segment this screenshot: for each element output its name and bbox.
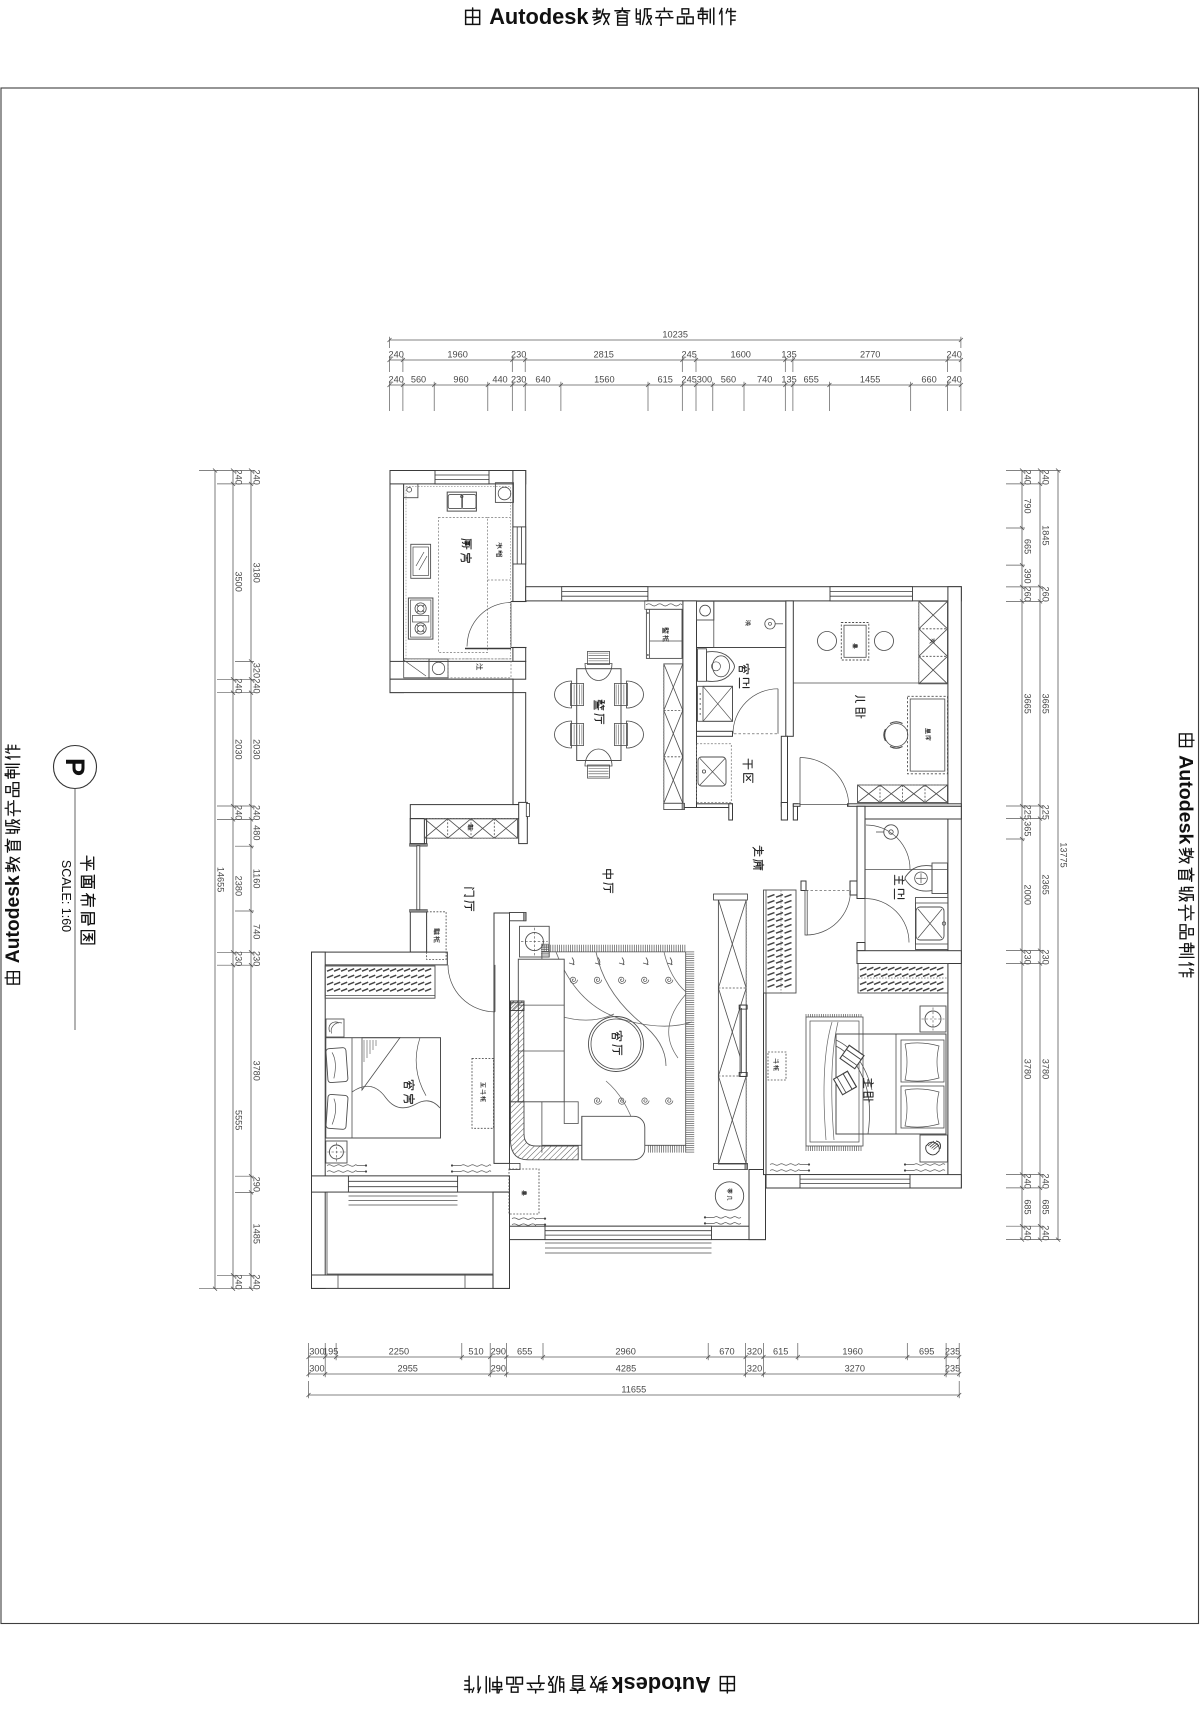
svg-text:685: 685 [1041,1199,1051,1214]
svg-text:1560: 1560 [594,375,614,385]
svg-text:240: 240 [947,350,962,360]
svg-text:615: 615 [773,1347,788,1357]
svg-text:SCALE: 1:60: SCALE: 1:60 [59,860,73,932]
svg-text:240: 240 [947,375,962,385]
svg-text:655: 655 [804,375,819,385]
svg-text:240: 240 [389,375,404,385]
svg-text:230: 230 [234,951,244,966]
svg-text:240: 240 [389,350,404,360]
svg-text:10235: 10235 [662,330,688,340]
svg-text:740: 740 [757,375,772,385]
svg-text:1960: 1960 [447,350,467,360]
svg-text:790: 790 [1023,498,1033,513]
svg-text:365: 365 [1023,821,1033,836]
svg-text:390: 390 [1023,568,1033,583]
svg-text:Autodesk: Autodesk [3,875,24,963]
svg-text:240: 240 [252,470,262,485]
svg-text:235: 235 [945,1364,960,1374]
svg-text:240: 240 [1023,1225,1033,1240]
svg-text:3780: 3780 [1041,1059,1051,1079]
svg-text:P: P [60,758,90,776]
svg-text:11655: 11655 [621,1385,646,1395]
svg-text:225: 225 [1023,805,1033,820]
svg-text:1960: 1960 [842,1347,862,1357]
svg-text:480: 480 [252,825,262,840]
svg-text:240: 240 [234,1274,244,1289]
svg-text:665: 665 [1023,539,1033,554]
svg-text:2955: 2955 [397,1364,417,1374]
svg-text:1600: 1600 [730,350,750,360]
svg-text:135: 135 [781,350,796,360]
svg-text:2250: 2250 [389,1347,409,1357]
svg-text:2030: 2030 [234,739,244,759]
svg-text:260: 260 [1041,587,1051,602]
svg-text:300: 300 [309,1364,324,1374]
svg-text:640: 640 [535,375,550,385]
svg-text:240: 240 [234,678,244,693]
svg-text:235: 235 [945,1347,960,1357]
svg-text:240: 240 [252,1274,262,1289]
svg-text:240: 240 [252,678,262,693]
svg-text:300: 300 [697,375,712,385]
svg-text:4285: 4285 [616,1364,636,1374]
svg-text:510: 510 [468,1347,483,1357]
svg-text:195: 195 [323,1347,338,1357]
svg-text:135: 135 [781,375,796,385]
svg-text:240: 240 [1041,1225,1051,1240]
svg-text:960: 960 [453,375,468,385]
svg-text:240: 240 [234,805,244,820]
svg-text:245: 245 [682,375,697,385]
svg-text:Autodesk: Autodesk [1175,755,1197,844]
svg-text:615: 615 [658,375,673,385]
svg-text:240: 240 [1041,1174,1051,1189]
svg-text:245: 245 [682,350,697,360]
svg-text:320: 320 [747,1347,762,1357]
svg-text:2815: 2815 [593,350,613,360]
svg-text:685: 685 [1023,1199,1033,1214]
svg-text:Autodesk: Autodesk [611,1672,711,1697]
svg-text:1845: 1845 [1041,525,1051,545]
svg-text:560: 560 [721,375,736,385]
svg-text:3665: 3665 [1041,693,1051,713]
svg-text:240: 240 [1023,470,1033,485]
svg-text:225: 225 [1041,805,1051,820]
svg-text:290: 290 [252,1177,262,1192]
svg-text:230: 230 [252,951,262,966]
svg-text:2000: 2000 [1023,885,1033,905]
svg-text:240: 240 [234,470,244,485]
svg-text:230: 230 [511,350,526,360]
svg-text:Autodesk: Autodesk [489,4,589,29]
svg-text:230: 230 [511,375,526,385]
svg-text:2030: 2030 [252,739,262,759]
svg-text:290: 290 [491,1347,506,1357]
svg-text:3180: 3180 [252,562,262,582]
svg-text:670: 670 [719,1347,734,1357]
svg-text:240: 240 [1041,470,1051,485]
svg-text:655: 655 [517,1347,532,1357]
svg-text:1485: 1485 [252,1224,262,1244]
svg-text:2770: 2770 [860,350,880,360]
svg-text:560: 560 [411,375,426,385]
svg-text:2365: 2365 [1041,874,1051,894]
svg-text:2380: 2380 [234,876,244,896]
svg-text:240: 240 [1023,1174,1033,1189]
svg-text:320: 320 [252,663,262,678]
svg-text:240: 240 [252,805,262,820]
svg-text:1160: 1160 [252,869,262,889]
svg-text:320: 320 [747,1364,762,1374]
svg-text:230: 230 [1023,949,1033,964]
svg-text:440: 440 [492,375,507,385]
svg-text:3665: 3665 [1023,693,1033,713]
svg-text:660: 660 [921,375,936,385]
svg-text:2960: 2960 [615,1347,635,1357]
svg-text:230: 230 [1041,949,1051,964]
svg-text:3270: 3270 [845,1364,865,1374]
svg-text:740: 740 [252,924,262,939]
svg-text:3500: 3500 [234,571,244,591]
svg-text:1455: 1455 [860,375,880,385]
svg-text:14655: 14655 [216,867,226,893]
svg-text:290: 290 [491,1364,506,1374]
svg-text:260: 260 [1023,587,1033,602]
svg-text:3780: 3780 [1023,1059,1033,1079]
svg-text:13775: 13775 [1059,842,1069,868]
svg-text:5555: 5555 [234,1110,244,1130]
svg-text:695: 695 [919,1347,934,1357]
svg-text:3780: 3780 [252,1060,262,1080]
